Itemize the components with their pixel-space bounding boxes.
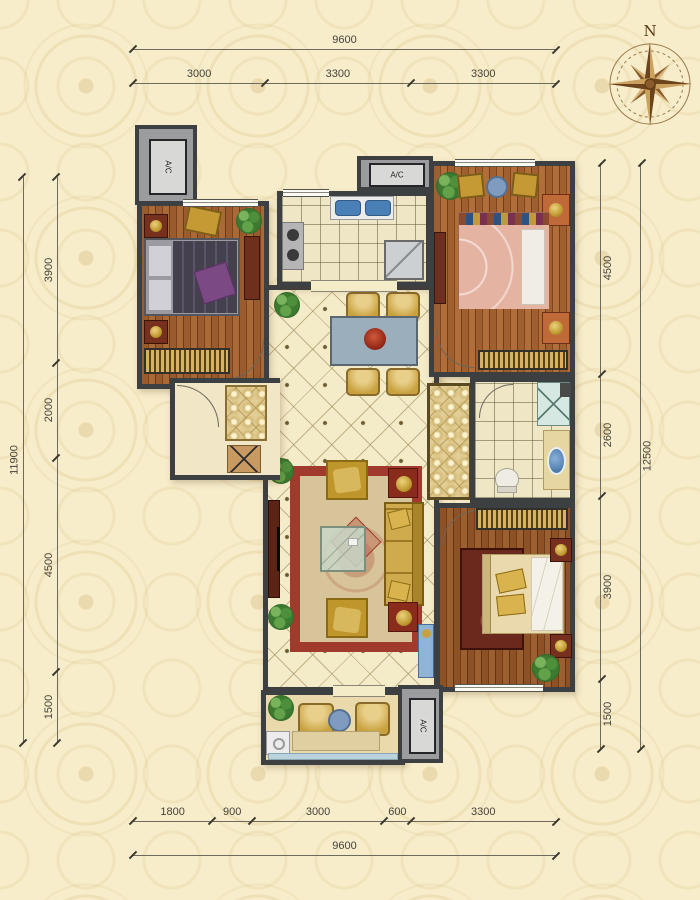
armchair [326, 460, 368, 500]
dimension-value: 9600 [332, 34, 356, 46]
dimension-value: 4500 [601, 256, 613, 280]
ac-unit-icon: A/C [369, 163, 425, 187]
dimension-segment: 4500 [600, 163, 616, 374]
sofa-backrest [412, 504, 422, 604]
bed-pillow [495, 568, 527, 593]
shower-shelf [560, 383, 571, 397]
sofa [384, 502, 424, 606]
kitchen-sink [330, 196, 394, 220]
dimension-segment: 4500 [42, 458, 58, 672]
dimension-value: 900 [223, 806, 241, 818]
bed [458, 212, 548, 308]
dimension-segment: 3000 [133, 68, 265, 84]
dimension-segment: 12500 [640, 163, 656, 749]
window [455, 684, 543, 692]
dimension-bottom-overall: 9600 [133, 840, 556, 856]
burner-icon [287, 249, 299, 261]
ac-platform: A/C [135, 125, 197, 205]
kitchen [277, 191, 431, 287]
washer-door-icon [273, 738, 285, 750]
dimension-segment: 3300 [411, 806, 556, 822]
wardrobe [476, 508, 568, 530]
window [183, 199, 258, 207]
tea-table [486, 176, 508, 198]
wardrobe [478, 350, 568, 370]
compass-north-label: N [643, 22, 656, 40]
bathroom [470, 377, 575, 503]
dimension-segment: 11900 [8, 177, 24, 743]
ac-label: A/C [389, 171, 404, 180]
plant-icon [532, 654, 560, 682]
headboard-cushions [459, 213, 549, 225]
dimension-left-overall: 11900 [8, 177, 24, 743]
toilet-tank [497, 486, 517, 493]
dimension-segment: 2600 [600, 374, 616, 496]
dimension-value: 12500 [641, 441, 653, 472]
dimension-segment: 3900 [42, 177, 58, 363]
ac-unit-icon: A/C [149, 139, 187, 195]
bed-pillow [148, 279, 172, 311]
balcony-table [328, 709, 351, 732]
dimension-segment: 9600 [133, 840, 556, 856]
washing-machine [266, 731, 290, 755]
tv-icon [277, 527, 280, 571]
dimension-value: 1500 [42, 695, 54, 719]
door-arc [224, 340, 264, 380]
dimension-value: 1800 [160, 806, 184, 818]
table-lamp-icon [150, 220, 162, 232]
stove [282, 222, 304, 270]
plant-icon [236, 208, 262, 234]
table-lamp-icon [396, 476, 412, 492]
ac-label: A/C [164, 159, 173, 174]
dining-table [330, 316, 418, 366]
side-table [388, 602, 418, 632]
entry-door-arc [177, 385, 219, 427]
sofa-pillow [387, 508, 411, 530]
sink-basin [335, 200, 361, 216]
coffee-table-books [348, 538, 358, 546]
bed [482, 554, 564, 634]
dimension-value: 3000 [187, 68, 211, 80]
balcony-bench [292, 731, 380, 751]
dimension-top-segments: 300033003300 [133, 68, 556, 84]
dimension-segment: 1500 [42, 672, 58, 743]
table-lamp-icon [150, 326, 162, 338]
dining-chair [346, 368, 380, 396]
tv-cabinet [268, 500, 280, 598]
dimension-value: 1500 [601, 702, 613, 726]
dimension-value: 3300 [471, 68, 495, 80]
refrigerator [384, 240, 424, 280]
sofa-pillow [387, 580, 410, 602]
floorplan-canvas: 9600 300033003300 180090030006003300 960… [0, 0, 700, 900]
vanity [543, 430, 570, 490]
balcony [261, 690, 405, 765]
floorplan: A/C A/C A/C [133, 125, 575, 765]
dimension-value: 11900 [8, 445, 20, 475]
nightstand [542, 312, 570, 344]
wash-basin [547, 447, 566, 475]
dimension-value: 3900 [601, 575, 613, 599]
bed-blanket [521, 229, 545, 305]
sink-fixture [422, 629, 431, 638]
dimension-value: 3300 [471, 806, 495, 818]
plant-icon [274, 292, 300, 318]
dimension-value: 4500 [42, 552, 54, 576]
armchair-cushion [332, 606, 361, 633]
dimension-value: 2600 [601, 423, 613, 447]
dimension-top-overall: 9600 [133, 34, 556, 50]
dimension-segment: 2000 [42, 363, 58, 458]
table-lamp-icon [555, 640, 567, 652]
dimension-segment: 3900 [600, 496, 616, 679]
ac-unit-icon: A/C [409, 698, 436, 754]
dimension-value: 3000 [306, 806, 330, 818]
laundry-sink-cabinet [418, 624, 434, 678]
dimension-right-segments: 4500260039001500 [600, 163, 616, 749]
dimension-segment: 1500 [600, 679, 616, 749]
table-lamp-icon [555, 544, 567, 556]
dimension-value: 9600 [332, 840, 356, 852]
dimension-segment: 1800 [133, 806, 212, 822]
window [455, 159, 535, 167]
door-arc [436, 330, 474, 368]
table-lamp-icon [396, 610, 412, 626]
dining-living-area [263, 285, 439, 692]
table-lamp-icon [549, 321, 563, 335]
ac-platform: A/C [398, 685, 443, 763]
dresser [434, 232, 446, 304]
dimension-value: 600 [388, 806, 406, 818]
plant-icon [268, 604, 294, 630]
compass-rose-icon: N [598, 22, 700, 134]
kitchen-passage [311, 280, 397, 292]
shower [537, 382, 570, 426]
dimension-segment: 3000 [252, 806, 384, 822]
bed-pillow [496, 594, 526, 617]
bedroom-secondary [137, 201, 269, 389]
bed-blanket [531, 557, 563, 631]
dimension-bottom-segments: 180090030006003300 [133, 806, 556, 822]
dimension-value: 3900 [42, 258, 54, 282]
dimension-segment: 600 [384, 806, 410, 822]
nightstand [550, 634, 572, 658]
burner-icon [287, 229, 299, 241]
dimension-left-segments: 3900200045001500 [42, 177, 58, 743]
table-flowers [364, 328, 386, 350]
entry-stool [227, 445, 261, 473]
bedroom-master [429, 161, 575, 377]
nightstand [144, 320, 168, 344]
ac-platform: A/C [357, 156, 433, 191]
nightstand [550, 538, 572, 562]
table-lamp-icon [549, 203, 563, 217]
dresser [244, 236, 260, 300]
chair [511, 172, 539, 199]
chair [184, 205, 223, 238]
armchair-cushion [332, 466, 361, 493]
dimension-segment: 9600 [133, 34, 556, 50]
dimension-segment: 3300 [265, 68, 410, 84]
dimension-segment: 3300 [411, 68, 556, 84]
armchair [326, 598, 368, 638]
window [283, 189, 329, 197]
coffee-table [320, 526, 366, 572]
wardrobe [144, 348, 230, 374]
ac-label: A/C [418, 718, 427, 733]
balcony-door-opening [333, 685, 385, 697]
chair [457, 173, 485, 200]
dimension-value: 2000 [42, 398, 54, 422]
dining-chair [386, 368, 420, 396]
door-arc [442, 510, 478, 546]
dimension-segment: 900 [212, 806, 252, 822]
nightstand [144, 214, 168, 238]
entry [170, 378, 280, 480]
side-table [388, 468, 418, 498]
entry-cabinet [225, 385, 267, 441]
bed [144, 238, 240, 316]
hallway-cabinet [427, 383, 472, 500]
dimension-right-overall: 12500 [640, 163, 656, 749]
bed-pillow [148, 245, 172, 277]
dimension-value: 3300 [326, 68, 350, 80]
balcony-glazing [268, 753, 398, 760]
bedroom-third [435, 503, 575, 692]
sink-basin [365, 200, 391, 216]
headboard [483, 555, 491, 633]
door-arc [479, 384, 513, 418]
plant-icon [268, 695, 294, 721]
